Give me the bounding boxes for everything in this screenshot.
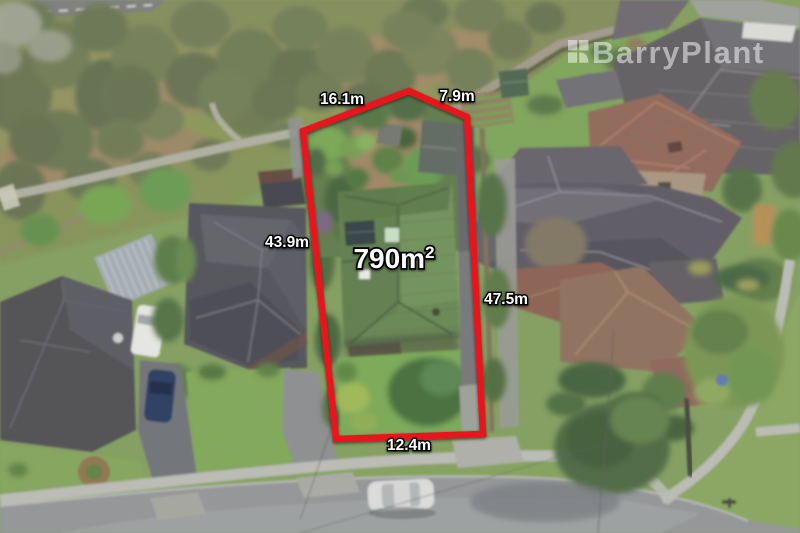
svg-text:43.9m: 43.9m: [265, 234, 309, 251]
svg-text:12.4m: 12.4m: [387, 437, 431, 454]
svg-text:16.1m: 16.1m: [320, 91, 364, 108]
svg-text:790m2: 790m2: [353, 243, 434, 274]
svg-text:BarryPlant: BarryPlant: [592, 35, 765, 70]
svg-text:47.5m: 47.5m: [484, 291, 528, 308]
svg-text:7.9m: 7.9m: [439, 88, 474, 105]
